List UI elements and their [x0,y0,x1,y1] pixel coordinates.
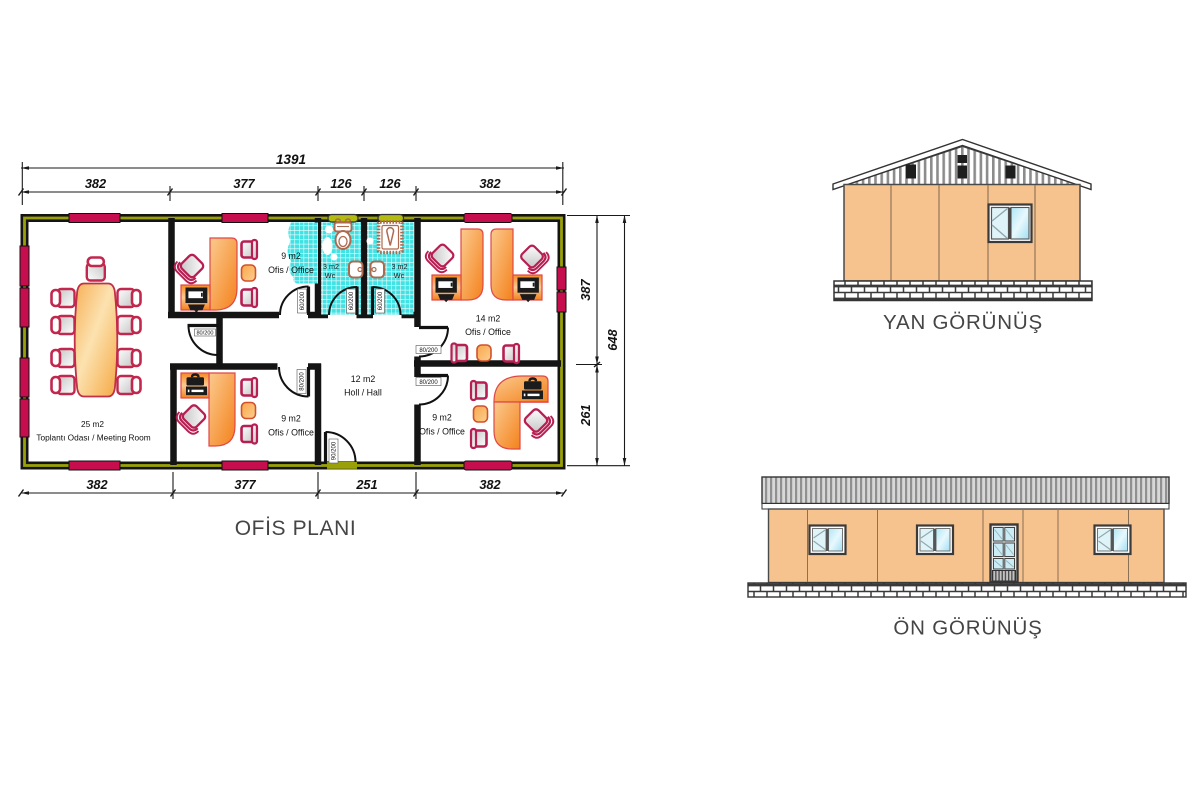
svg-text:Ofis / Office: Ofis / Office [419,427,465,437]
svg-text:80/200: 80/200 [196,331,213,337]
svg-text:251: 251 [355,477,377,492]
svg-text:9 m2: 9 m2 [432,413,452,423]
svg-text:80/200: 80/200 [300,372,306,391]
svg-text:14 m2: 14 m2 [476,314,501,324]
svg-text:25 m2: 25 m2 [81,419,104,429]
svg-text:12 m2: 12 m2 [351,374,376,384]
svg-text:90/200: 90/200 [332,441,338,460]
svg-text:387: 387 [578,278,593,300]
svg-text:80/200: 80/200 [419,380,438,386]
svg-text:377: 377 [233,176,255,191]
svg-text:377: 377 [234,477,256,492]
svg-text:ÖN GÖRÜNÜŞ: ÖN GÖRÜNÜŞ [893,617,1042,640]
svg-text:Ofis / Office: Ofis / Office [268,428,314,438]
svg-text:382: 382 [479,477,500,492]
svg-text:60/200: 60/200 [378,291,384,310]
svg-text:648: 648 [605,328,620,350]
svg-text:261: 261 [578,404,593,426]
svg-text:9 m2: 9 m2 [281,251,301,261]
svg-text:Ofis / Office: Ofis / Office [465,327,511,337]
svg-text:Holl / Hall: Holl / Hall [344,388,382,398]
svg-text:60/200: 60/200 [300,291,306,310]
svg-text:Wc: Wc [325,271,336,280]
svg-text:126: 126 [379,176,401,191]
svg-text:Ofis / Office: Ofis / Office [268,265,314,275]
svg-text:126: 126 [330,176,352,191]
svg-text:3 m2: 3 m2 [392,262,408,271]
svg-text:382: 382 [479,176,500,191]
svg-text:OFİS PLANI: OFİS PLANI [235,517,357,540]
svg-text:9 m2: 9 m2 [281,414,301,424]
svg-text:YAN GÖRÜNÜŞ: YAN GÖRÜNÜŞ [883,311,1043,334]
svg-text:1391: 1391 [276,152,306,167]
svg-text:60/200: 60/200 [349,291,355,310]
svg-text:Wc: Wc [394,271,405,280]
svg-text:80/200: 80/200 [419,348,438,354]
svg-text:Toplantı Odası / Meeting Room: Toplantı Odası / Meeting Room [36,433,150,443]
svg-text:382: 382 [85,176,106,191]
svg-text:382: 382 [86,477,107,492]
svg-text:3 m2: 3 m2 [323,262,339,271]
